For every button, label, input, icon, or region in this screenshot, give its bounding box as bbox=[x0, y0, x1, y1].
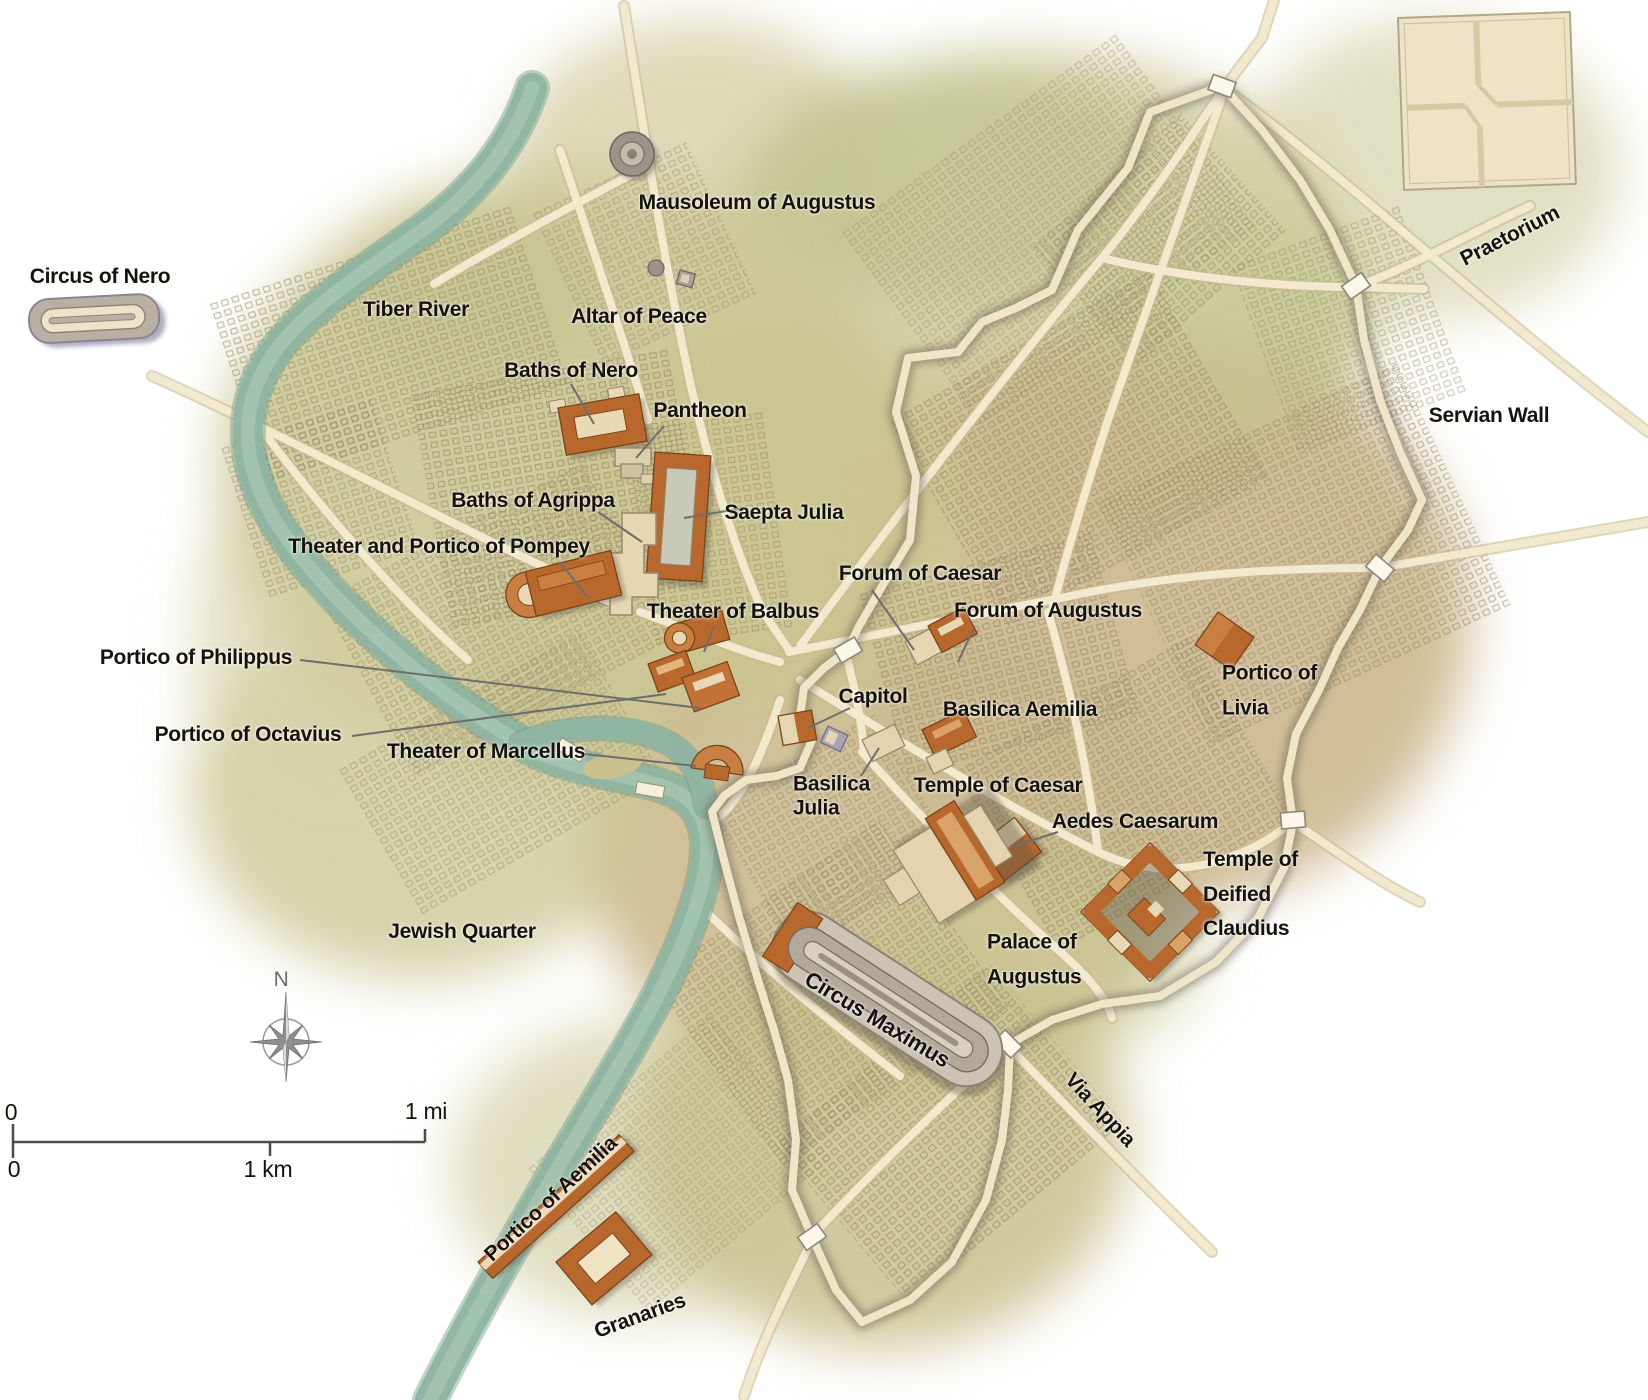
praetorian-camp-building bbox=[1398, 12, 1576, 190]
map-artwork bbox=[0, 0, 1648, 1400]
capitol-building bbox=[778, 710, 817, 745]
scale-bar bbox=[13, 1124, 425, 1158]
circus-of-nero-building bbox=[28, 293, 166, 349]
compass-rose-icon bbox=[250, 992, 322, 1082]
rome-map: Circus of NeroTiber RiverMausoleum of Au… bbox=[0, 0, 1648, 1400]
